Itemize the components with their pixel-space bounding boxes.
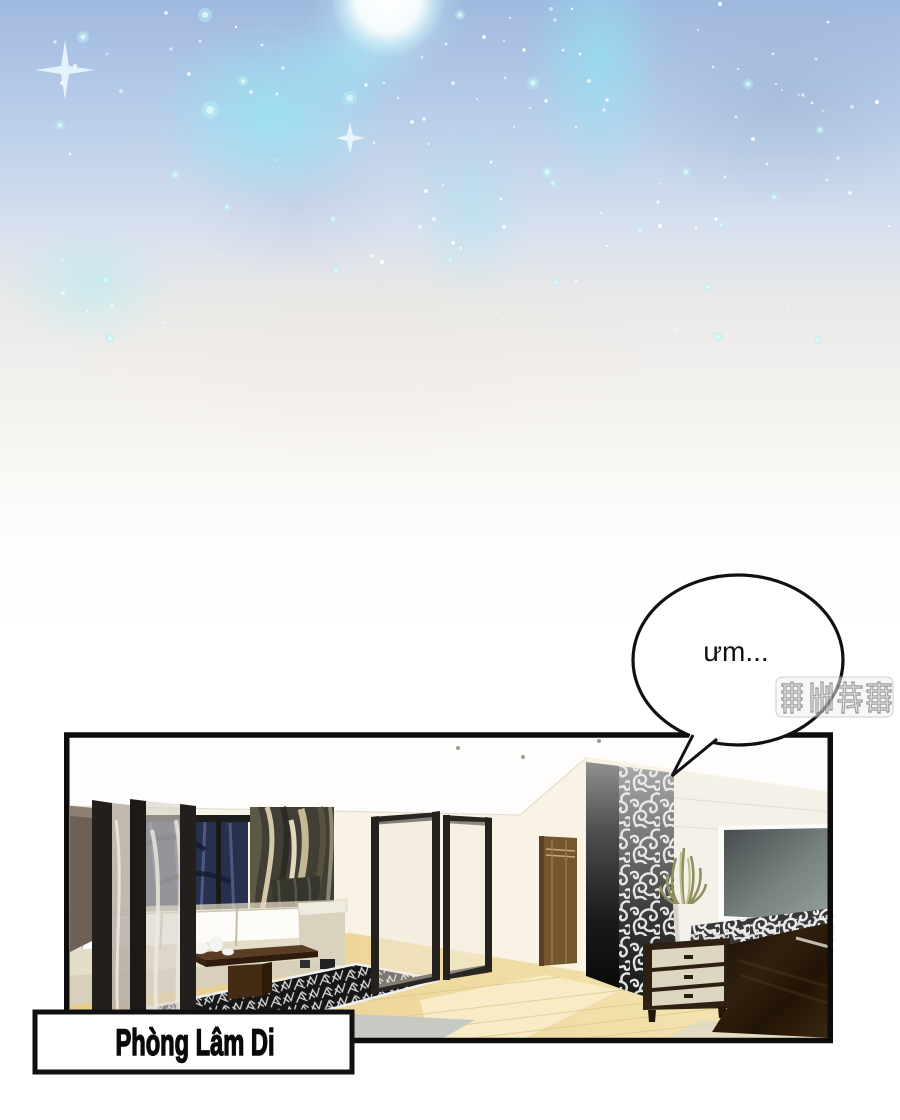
svg-text:ưm...: ưm... [703, 636, 768, 667]
svg-text:Phòng Lâm Di: Phòng Lâm Di [115, 1022, 274, 1064]
